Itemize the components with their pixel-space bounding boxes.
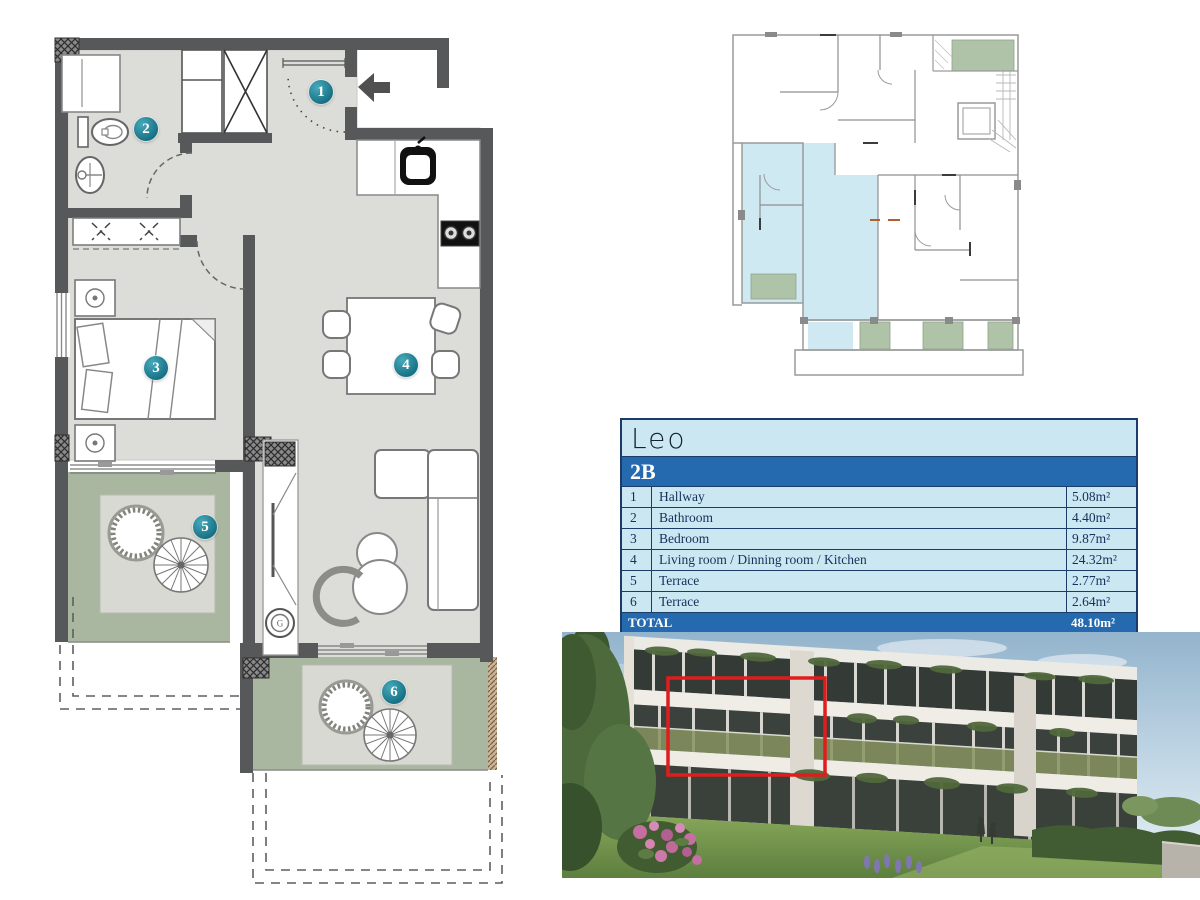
room-area: 2.64m² <box>1066 592 1136 612</box>
boiler-label: G <box>277 619 284 629</box>
room-name: Bedroom <box>652 529 1066 549</box>
table-row: 4 Living room / Dinning room / Kitchen 2… <box>622 550 1136 571</box>
table-row: 5 Terrace 2.77m² <box>622 571 1136 592</box>
room-badge-living: 4 <box>394 353 418 377</box>
total-label: TOTAL <box>622 613 1066 632</box>
building-render-image <box>562 632 1200 878</box>
site-floorplan <box>720 30 1200 390</box>
table-row: 1 Hallway 5.08m² <box>622 487 1136 508</box>
room-badge-hallway: 1 <box>309 80 333 104</box>
room-name: Terrace <box>652 571 1066 591</box>
room-name: Terrace <box>652 592 1066 612</box>
room-area: 24.32m² <box>1066 550 1136 570</box>
main-floorplan: G <box>40 25 510 895</box>
room-name: Bathroom <box>652 508 1066 528</box>
room-name: Living room / Dinning room / Kitchen <box>652 550 1066 570</box>
room-badge-terrace5: 5 <box>193 515 217 539</box>
building-render <box>562 632 1200 878</box>
main-floorplan-drawing: G <box>40 25 510 895</box>
room-number: 4 <box>622 550 652 570</box>
room-number: 3 <box>622 529 652 549</box>
brochure-page: G <box>0 0 1200 900</box>
room-area: 5.08m² <box>1066 487 1136 507</box>
room-badge-bathroom: 2 <box>134 117 158 141</box>
unit-code: 2B <box>622 457 1136 487</box>
room-badge-bedroom: 3 <box>144 356 168 380</box>
room-badge-terrace6: 6 <box>382 680 406 704</box>
brand-logo: Leo <box>622 420 1136 457</box>
total-area: 48.10m² <box>1066 613 1136 632</box>
table-row: 3 Bedroom 9.87m² <box>622 529 1136 550</box>
table-row: 2 Bathroom 4.40m² <box>622 508 1136 529</box>
room-area: 2.77m² <box>1066 571 1136 591</box>
table-total-row: TOTAL 48.10m² <box>622 613 1136 632</box>
unit-areas-table: Leo 2B 1 Hallway 5.08m² 2 Bathroom 4.40m… <box>620 418 1138 634</box>
room-area: 4.40m² <box>1066 508 1136 528</box>
table-row: 6 Terrace 2.64m² <box>622 592 1136 613</box>
site-floorplan-drawing <box>720 30 1200 390</box>
room-number: 5 <box>622 571 652 591</box>
room-number: 6 <box>622 592 652 612</box>
room-number: 1 <box>622 487 652 507</box>
room-area: 9.87m² <box>1066 529 1136 549</box>
room-name: Hallway <box>652 487 1066 507</box>
room-number: 2 <box>622 508 652 528</box>
